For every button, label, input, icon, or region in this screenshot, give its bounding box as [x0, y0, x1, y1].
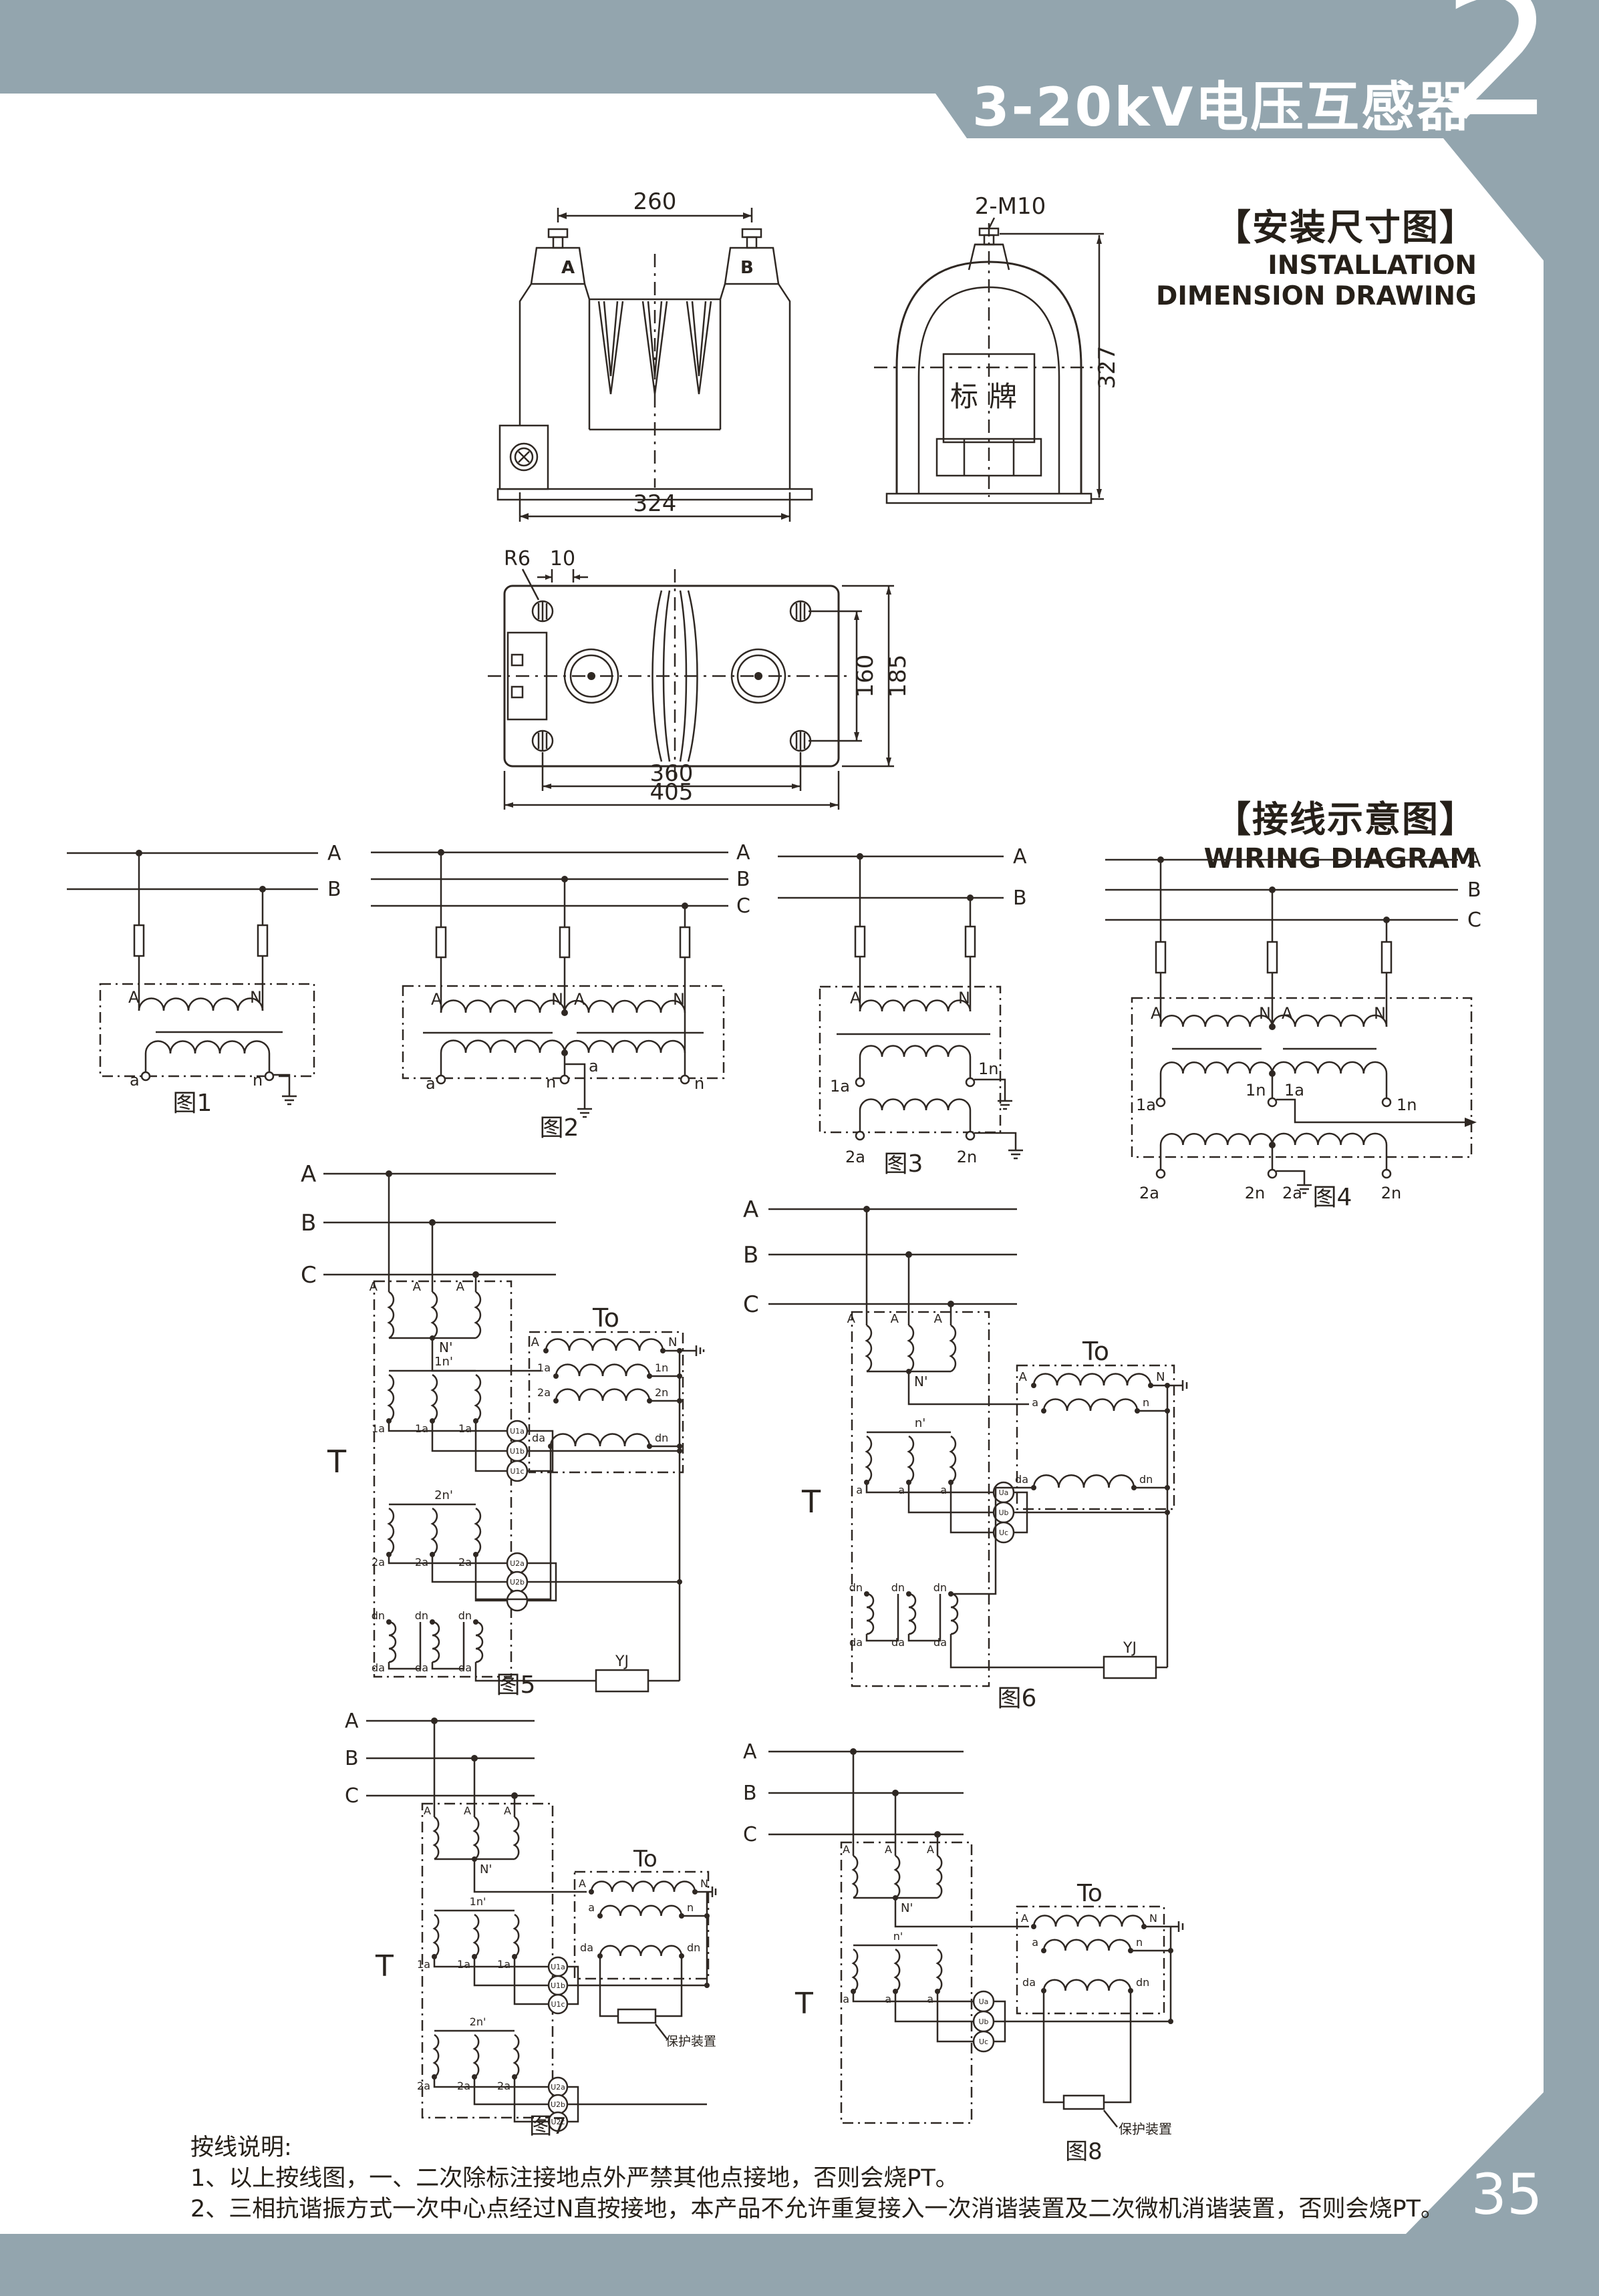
t-label: T [327, 1444, 347, 1480]
to-n-label: N [1149, 1912, 1157, 1925]
installation-heading-zh: 【安装尺寸图】 [1129, 198, 1477, 251]
to-2n-label: 2n [655, 1386, 668, 1399]
wiring-figure-2: A B C A N A N a n a n 图2 [364, 834, 755, 1144]
chapter-number: 2 [1442, 0, 1555, 138]
secondary-a-label: a [130, 1071, 140, 1090]
bus-b-label: B [1013, 886, 1027, 910]
bus-b-label: B [743, 1782, 757, 1805]
to-label: To [1076, 1880, 1103, 1907]
wiring-notes: 按线说明: 1、以上按线图，一、二次除标注接地点外严禁其他点接地，否则会烧PT。… [190, 2132, 1444, 2225]
to-dn-label: dn [655, 1432, 668, 1444]
sec2-a-label: 2a [845, 1148, 865, 1166]
bus-c-label: C [345, 1784, 359, 1808]
p1-label: A [424, 1804, 431, 1817]
r3-b1-label: 2a [372, 1556, 385, 1569]
notes-line-2: 2、三相抗谐振方式一次中心点经过N直按接地，本产品不允许重复接入一次消谐装置及二… [190, 2194, 1444, 2225]
to-sn-label: n [687, 1901, 694, 1914]
to-dn-label: dn [1139, 1473, 1153, 1486]
primary-a-label: A [128, 988, 140, 1007]
dim-324-label: 324 [633, 490, 677, 517]
figure-caption: 图6 [998, 1685, 1037, 1712]
p3-label: A [934, 1312, 943, 1326]
r2-top-label: n' [893, 1930, 903, 1943]
to-sn-label: n [1143, 1396, 1149, 1409]
figure-caption: 图3 [884, 1150, 923, 1178]
primary-a2-label: A [1282, 1004, 1293, 1023]
r3-t1-label: dn [849, 1581, 863, 1594]
primary-n1-label: N [551, 990, 563, 1009]
r3-b3-label: 2a [497, 2080, 511, 2092]
secondary-n1-label: n [546, 1073, 556, 1092]
yj-label: YJ [615, 1653, 629, 1670]
to-1n-label: 1n [655, 1361, 668, 1374]
to-n-label: N [668, 1335, 677, 1349]
to-2a-label: 2a [537, 1386, 551, 1399]
page-number: 35 [1457, 2162, 1557, 2227]
r2-b1-label: a [856, 1484, 863, 1496]
np-label: N' [914, 1373, 927, 1389]
r2-b3-label: a [940, 1484, 947, 1496]
p2-label: A [885, 1843, 892, 1856]
np-label: N' [480, 1862, 492, 1876]
to-n-label: N [1156, 1370, 1165, 1384]
to-a-label: A [1021, 1912, 1028, 1925]
wiring-figure-5: A B C T A A A N' 1n' 1a 1a 1a U1a U1b U1… [289, 1150, 706, 1697]
bus-a-label: A [736, 841, 750, 864]
to-da-label: da [580, 1941, 593, 1954]
p3-label: A [927, 1843, 934, 1856]
r3-b2-label: 2a [415, 1556, 428, 1569]
r3-top-label: 2n' [470, 2015, 486, 2028]
r2-b2-label: a [885, 1993, 891, 2005]
dim-405-label: 405 [650, 779, 694, 806]
p1-label: A [370, 1280, 378, 1294]
yj-label: YJ [1123, 1640, 1137, 1657]
to-da-label: da [1015, 1473, 1028, 1486]
dim-160-label: 160 [852, 655, 879, 698]
bus-a-label: A [1467, 848, 1481, 872]
installation-heading-en1: INSTALLATION [1129, 251, 1477, 281]
secondary-tap-label: a [589, 1057, 599, 1076]
protection-device-label: 保护装置 [666, 2034, 716, 2049]
lamp-u2a: U2a [551, 2083, 565, 2092]
primary-n-label: N [250, 988, 262, 1007]
lamp-u1b: U1b [510, 1447, 525, 1456]
sec1-a2-label: 1a [1284, 1081, 1304, 1100]
p2-label: A [891, 1312, 899, 1326]
page-title: 3-20kV电压互感器 [972, 64, 1472, 142]
to-da-label: da [532, 1432, 545, 1444]
sec1-n1-label: 1n [1246, 1081, 1266, 1100]
dim-327-label: 327 [1094, 346, 1121, 389]
bus-a-label: A [1013, 845, 1027, 868]
wiring-heading-zh: 【接线示意图】 [1129, 790, 1477, 842]
secondary-a1-label: a [426, 1074, 436, 1093]
bus-b-label: B [327, 878, 341, 901]
terminal-a-label: A [561, 258, 575, 278]
sec1-n2-label: 1n [1397, 1096, 1417, 1114]
dim-185-label: 185 [885, 655, 911, 698]
wiring-figure-6: A B C T A A A N' n' a a a Ua Ub Uc dn dn… [730, 1184, 1191, 1714]
r4-t1-label: dn [372, 1609, 385, 1622]
np-label: N' [901, 1901, 913, 1915]
lamp-ua: Ua [999, 1488, 1009, 1497]
to-n-label: N [700, 1877, 708, 1890]
r3-b3-label: 2a [458, 1556, 472, 1569]
p3-label: A [456, 1280, 465, 1294]
r2-b1-label: 1a [372, 1422, 385, 1435]
lamp-ua: Ua [979, 1997, 989, 2006]
primary-a2-label: A [574, 990, 585, 1009]
r3-b2-label: 2a [457, 2080, 470, 2092]
side-view-drawing: 2-M10 标牌 327 [855, 195, 1123, 518]
figure-caption: 图5 [496, 1671, 536, 1699]
wiring-figure-3: A B A N 1a 1n 2a 2n 图3 [770, 836, 1057, 1176]
primary-a1-label: A [1151, 1004, 1162, 1023]
sec2-a2-label: 2a [1282, 1184, 1302, 1202]
bus-b-label: B [1467, 878, 1481, 902]
r2-b2-label: 1a [415, 1422, 428, 1435]
figure-caption: 图4 [1313, 1184, 1352, 1211]
to-label: To [1082, 1337, 1109, 1366]
to-label: To [592, 1303, 619, 1333]
r2-b3-label: a [927, 1993, 933, 2005]
r2-top-label: n' [915, 1416, 925, 1430]
slot-width-label: 10 [550, 547, 575, 570]
to-label: To [633, 1846, 658, 1872]
r2-top-label: 1n' [470, 1895, 486, 1908]
t-label: T [801, 1484, 821, 1520]
r3-t3-label: dn [933, 1581, 947, 1594]
r2-top-label: 1n' [434, 1355, 453, 1369]
chapter-number-badge: 2 [1415, 0, 1599, 138]
t-label: T [375, 1949, 394, 1983]
sec2-n1-label: 2n [1245, 1184, 1265, 1202]
bus-a-label: A [743, 1196, 758, 1223]
primary-a1-label: A [431, 990, 442, 1009]
primary-a-label: A [850, 989, 861, 1007]
front-view-drawing: 260 A B 324 [461, 190, 849, 540]
bus-a-label: A [327, 842, 341, 865]
r2-b1-label: a [843, 1993, 849, 2005]
lamp-u2b: U2b [551, 2100, 565, 2109]
primary-n1-label: N [1259, 1004, 1271, 1023]
lamp-u2a: U2a [510, 1559, 525, 1568]
notes-title: 按线说明: [190, 2132, 1444, 2163]
section-heading-installation: 【安装尺寸图】 INSTALLATION DIMENSION DRAWING [1129, 198, 1477, 312]
r4-b2-label: da [415, 1661, 428, 1674]
primary-n-label: N [958, 989, 970, 1007]
p2-label: A [464, 1804, 471, 1817]
bus-b-label: B [736, 868, 750, 891]
dim-260-label: 260 [633, 188, 677, 215]
lamp-uc: Uc [999, 1528, 1008, 1537]
wiring-figure-4: A B C A N A N 1a 1n 1a 1n 2a 2n 2a 2n 图4 [1097, 843, 1505, 1210]
installation-heading-en2: DIMENSION DRAWING [1129, 281, 1477, 312]
lamp-u1a: U1a [551, 1963, 565, 1971]
terminal-b-label: B [740, 258, 754, 278]
wiring-figure-7: A B C T A A A N' 1n' 1a 1a 1a U1a U1b U1… [334, 1695, 718, 2139]
r4-t2-label: dn [415, 1609, 428, 1622]
to-sa-label: a [1032, 1936, 1038, 1949]
primary-n2-label: N [1374, 1004, 1386, 1023]
to-a-label: A [579, 1877, 586, 1890]
sec2-n-label: 2n [957, 1148, 977, 1166]
p1-label: A [843, 1843, 850, 1856]
bus-c-label: C [301, 1262, 317, 1289]
r3-b1-label: 2a [417, 2080, 430, 2092]
lamp-u1b: U1b [551, 1981, 565, 1990]
p2-label: A [413, 1280, 422, 1294]
lamp-ub: Ub [998, 1508, 1008, 1517]
to-a-label: A [1019, 1370, 1028, 1384]
t-label: T [794, 1987, 813, 2021]
figure-caption: 图1 [173, 1090, 212, 1117]
lamp-u1c: U1c [551, 2000, 565, 2009]
p1-label: A [847, 1312, 856, 1326]
to-da-label: da [1022, 1976, 1036, 1989]
r2-b2-label: 1a [457, 1958, 470, 1971]
sec2-n2-label: 2n [1381, 1184, 1401, 1202]
top-view-drawing: R6 10 160 185 360 405 [461, 529, 929, 819]
np-label: N' [439, 1339, 452, 1355]
notes-line-1: 1、以上按线图，一、二次除标注接地点外严禁其他点接地，否则会烧PT。 [190, 2163, 1444, 2194]
to-sa-label: a [588, 1901, 595, 1914]
primary-n2-label: N [673, 990, 685, 1009]
sec1-n-label: 1n [978, 1059, 998, 1078]
bus-a-label: A [743, 1740, 757, 1764]
to-dn-label: dn [687, 1941, 700, 1954]
to-dn-label: dn [1136, 1976, 1149, 1989]
figure-caption: 图2 [540, 1114, 579, 1142]
lamp-u1a: U1a [510, 1427, 525, 1436]
r2-b1-label: 1a [417, 1958, 430, 1971]
to-1a-label: 1a [537, 1361, 551, 1374]
r2-b3-label: 1a [497, 1958, 511, 1971]
r3-top-label: 2n' [434, 1488, 453, 1502]
secondary-n-label: n [253, 1071, 263, 1090]
bus-c-label: C [743, 1291, 759, 1318]
bus-a-label: A [345, 1709, 359, 1733]
r4-b3-label: da [458, 1661, 472, 1674]
lamp-u2b: U2b [510, 1578, 525, 1587]
r3-t2-label: dn [891, 1581, 905, 1594]
bus-c-label: C [736, 894, 750, 918]
bus-b-label: B [743, 1242, 758, 1269]
wiring-figure-8: A B C T A A A N' n' a a a Ua Ub Uc To A … [730, 1725, 1191, 2168]
bolt-spec-label: 2-M10 [975, 193, 1046, 220]
lamp-ub: Ub [978, 2017, 988, 2026]
p3-label: A [504, 1804, 511, 1817]
to-sn-label: n [1136, 1936, 1143, 1949]
bus-b-label: B [301, 1210, 316, 1237]
slot-radius-label: R6 [504, 547, 531, 570]
lamp-u1c: U1c [510, 1467, 524, 1476]
wiring-figure-1: A B A N a n 图1 [59, 832, 353, 1118]
bus-c-label: C [1467, 909, 1481, 932]
sec1-a-label: 1a [830, 1077, 850, 1096]
r2-b3-label: 1a [458, 1422, 472, 1435]
bus-b-label: B [345, 1747, 359, 1770]
r2-b2-label: a [898, 1484, 905, 1496]
to-a-label: A [531, 1335, 540, 1349]
lamp-uc: Uc [979, 2037, 988, 2046]
r4-b1-label: da [372, 1661, 385, 1674]
to-sa-label: a [1032, 1396, 1038, 1409]
sec1-a1-label: 1a [1136, 1096, 1156, 1114]
secondary-n2-label: n [694, 1074, 704, 1093]
r3-b1-label: da [849, 1636, 863, 1649]
bus-a-label: A [301, 1161, 316, 1188]
r4-t3-label: dn [458, 1609, 472, 1622]
bus-c-label: C [743, 1823, 757, 1846]
